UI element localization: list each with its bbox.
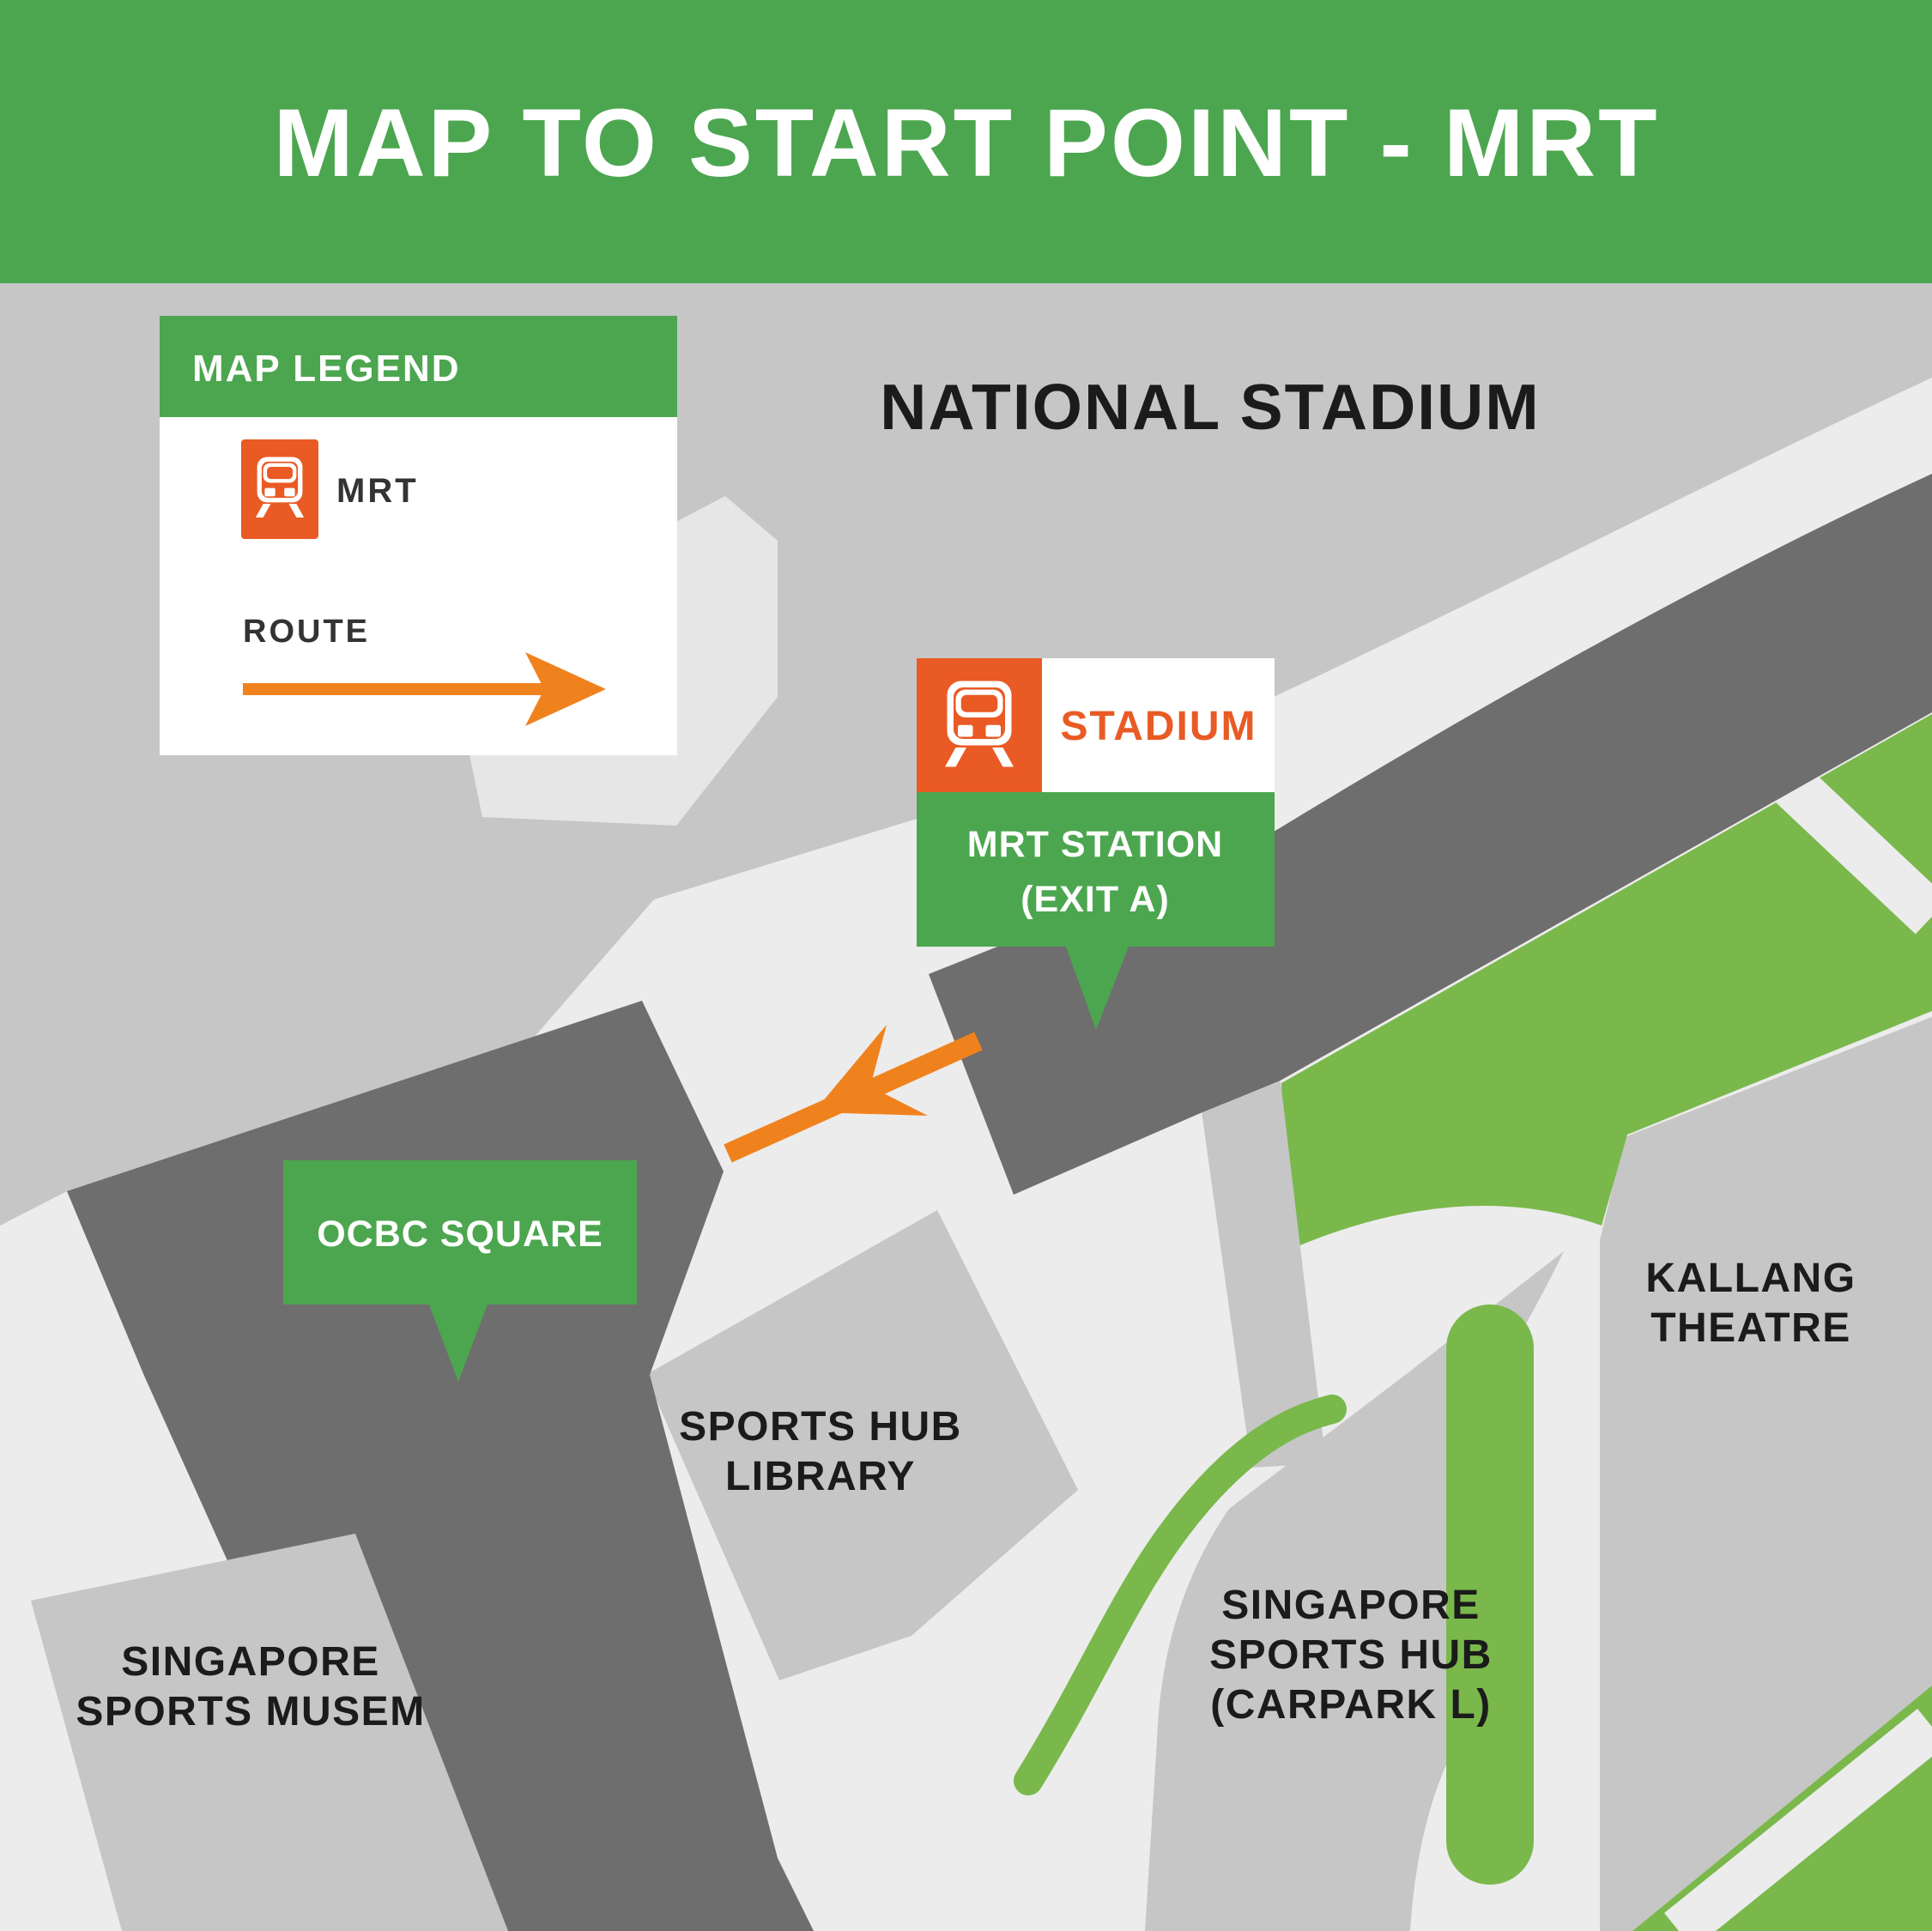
- label-library-line2: LIBRARY: [725, 1454, 916, 1499]
- legend-mrt-label: MRT: [336, 472, 419, 510]
- map-legend: MAP LEGEND MRT ROUTE: [160, 316, 677, 755]
- label-kallang-line2: THEATRE: [1650, 1305, 1851, 1351]
- map-canvas: STADIUM MRT STATION (EXIT A) OCBC SQUARE…: [0, 0, 1932, 1931]
- map-poster: STADIUM MRT STATION (EXIT A) OCBC SQUARE…: [0, 0, 1932, 1931]
- label-sports-hub-line3: (CARPARK L): [1210, 1682, 1492, 1728]
- page-title: MAP TO START POINT - MRT: [273, 89, 1659, 197]
- station-label-box: [917, 792, 1275, 947]
- label-national-stadium: NATIONAL STADIUM: [880, 371, 1540, 443]
- station-name: STADIUM: [1060, 704, 1257, 749]
- legend-route-label: ROUTE: [243, 614, 370, 650]
- label-library-line1: SPORTS HUB: [679, 1404, 962, 1450]
- label-sports-hub-line1: SINGAPORE: [1221, 1583, 1481, 1628]
- station-label-line2: (EXIT A): [1021, 879, 1170, 920]
- label-museum-line1: SINGAPORE: [121, 1639, 380, 1685]
- legend-title: MAP LEGEND: [192, 348, 461, 390]
- label-museum-line2: SPORTS MUSEM: [76, 1689, 425, 1734]
- label-sports-hub-line2: SPORTS HUB: [1209, 1632, 1493, 1678]
- label-kallang-line1: KALLANG: [1645, 1256, 1856, 1301]
- ocbc-callout-label: OCBC SQUARE: [317, 1214, 603, 1255]
- station-label-line1: MRT STATION: [967, 824, 1223, 865]
